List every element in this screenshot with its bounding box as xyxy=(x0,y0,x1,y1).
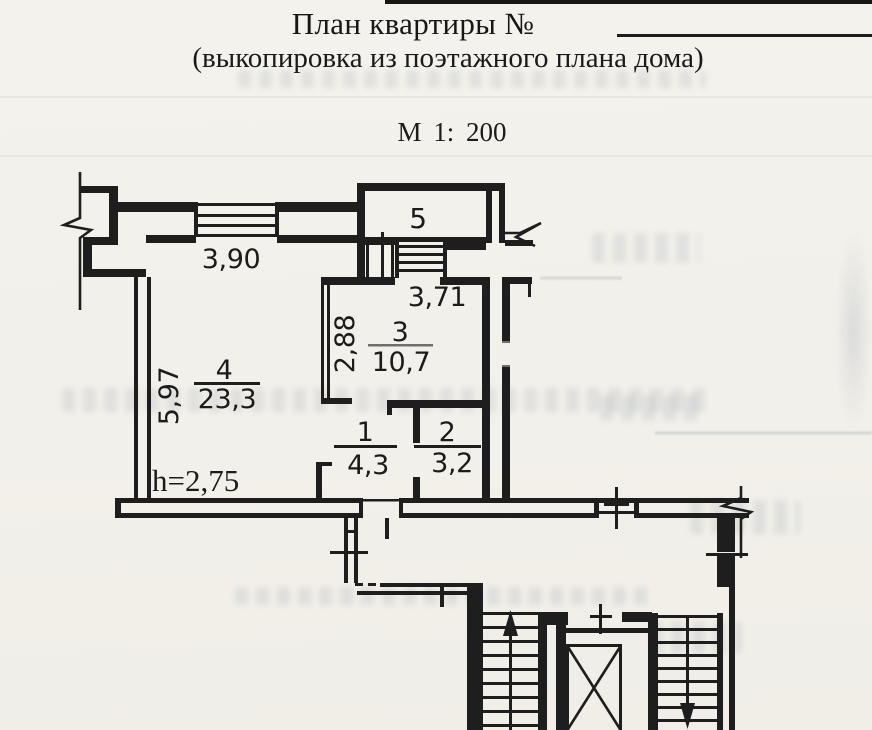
room-4-number: 4 xyxy=(216,355,233,386)
south-wall xyxy=(115,498,749,518)
stairs-down-arrow-icon xyxy=(680,615,695,729)
room-1-number: 1 xyxy=(357,417,374,448)
elevator-shaft xyxy=(556,604,658,730)
east-wall xyxy=(482,240,533,498)
room-3-area: 10,7 xyxy=(372,347,431,378)
stairwell xyxy=(467,583,735,730)
dim-kitchen-depth: 2,88 xyxy=(330,315,361,374)
room-3-number: 3 xyxy=(392,317,409,348)
dim-living-depth: 5,97 xyxy=(154,367,185,426)
room-4-area: 23,3 xyxy=(198,384,257,415)
entrance-door xyxy=(359,498,403,539)
balcony-walls xyxy=(357,183,505,281)
room-1-area: 4,3 xyxy=(347,450,389,481)
floor-plan-drawing: 5 3,90 3,71 2,88 5,97 4 23,3 3 10,7 1 4,… xyxy=(0,0,872,730)
dim-top-window: 3,90 xyxy=(202,244,261,275)
room-1-label: 1 4,3 xyxy=(334,417,397,481)
ceiling-height-note: h=2,75 xyxy=(152,463,239,498)
dim-kitchen-width: 3,71 xyxy=(408,282,467,313)
south-wall-window xyxy=(594,487,639,529)
room-2-area: 3,2 xyxy=(431,448,473,479)
window-living-room xyxy=(194,202,279,237)
room-3-label: 3 10,7 xyxy=(368,317,433,378)
west-wall xyxy=(134,277,151,498)
room-5-number: 5 xyxy=(409,202,426,235)
room-4-label: 4 23,3 xyxy=(194,355,260,415)
scanned-floor-plan-page: План квартиры № (выкопировка из поэтажно… xyxy=(0,0,872,730)
corridor-walls xyxy=(330,517,467,607)
room-2-number: 2 xyxy=(439,417,456,448)
room-2-label: 2 3,2 xyxy=(414,417,481,479)
